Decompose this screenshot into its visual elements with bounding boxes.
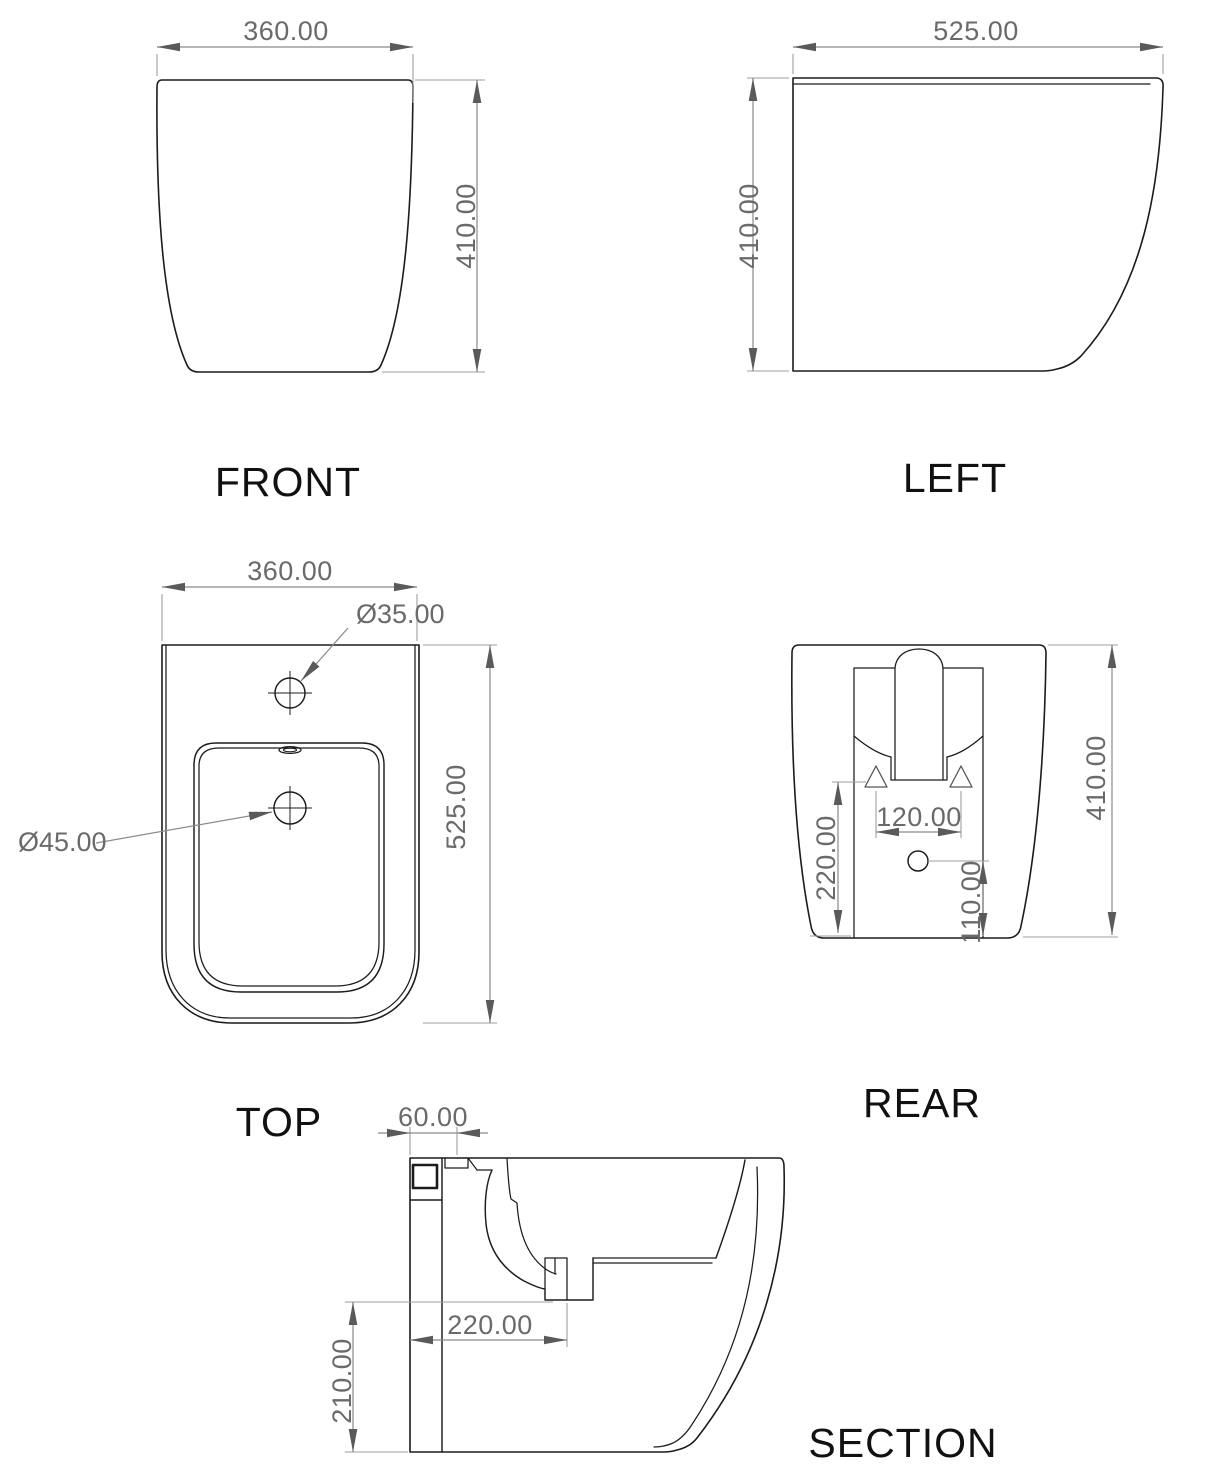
top-depth-dim: 525.00: [441, 764, 471, 850]
top-view-label: TOP: [236, 1099, 323, 1145]
front-view: 360.00 410.00 FRONT: [157, 16, 485, 505]
rear-view-label: REAR: [863, 1080, 981, 1126]
drain-hole-dim: Ø45.00: [18, 827, 107, 857]
section-60-dim: 60.00: [398, 1102, 468, 1132]
section-view-label: SECTION: [808, 1420, 997, 1466]
rear-height-dim: 410.00: [1081, 735, 1111, 821]
section-210-dim: 210.00: [327, 1338, 357, 1424]
rear-view: 120.00 220.00 110.00 410.00 REAR: [792, 645, 1118, 1126]
left-outline: [793, 78, 1163, 371]
front-height-dim: 410.00: [451, 183, 481, 269]
rear-110-dim: 110.00: [956, 860, 986, 944]
top-view: 360.00 525.00 Ø35.00 Ø45.00 TOP: [18, 556, 497, 1145]
faucet-hole-dim: Ø35.00: [356, 599, 445, 629]
section-outline: [410, 1158, 784, 1452]
technical-drawing: 360.00 410.00 FRONT 525.00 410.00 LEFT 3…: [0, 0, 1230, 1480]
left-view-label: LEFT: [903, 455, 1007, 501]
technical-drawing-page: 360.00 410.00 FRONT 525.00 410.00 LEFT 3…: [0, 0, 1230, 1480]
left-depth-dim: 525.00: [933, 16, 1019, 46]
section-view: 60.00 220.00 210.00 SECTION: [327, 1102, 998, 1466]
left-height-dim: 410.00: [734, 183, 764, 269]
rear-220-dim: 220.00: [811, 815, 841, 901]
front-width-dim: 360.00: [243, 16, 329, 46]
rear-fixing-dim: 120.00: [876, 802, 962, 832]
left-view: 525.00 410.00 LEFT: [734, 16, 1163, 501]
section-220-dim: 220.00: [447, 1310, 533, 1340]
front-outline: [157, 80, 413, 372]
front-view-label: FRONT: [215, 459, 361, 505]
top-width-dim: 360.00: [247, 556, 333, 586]
